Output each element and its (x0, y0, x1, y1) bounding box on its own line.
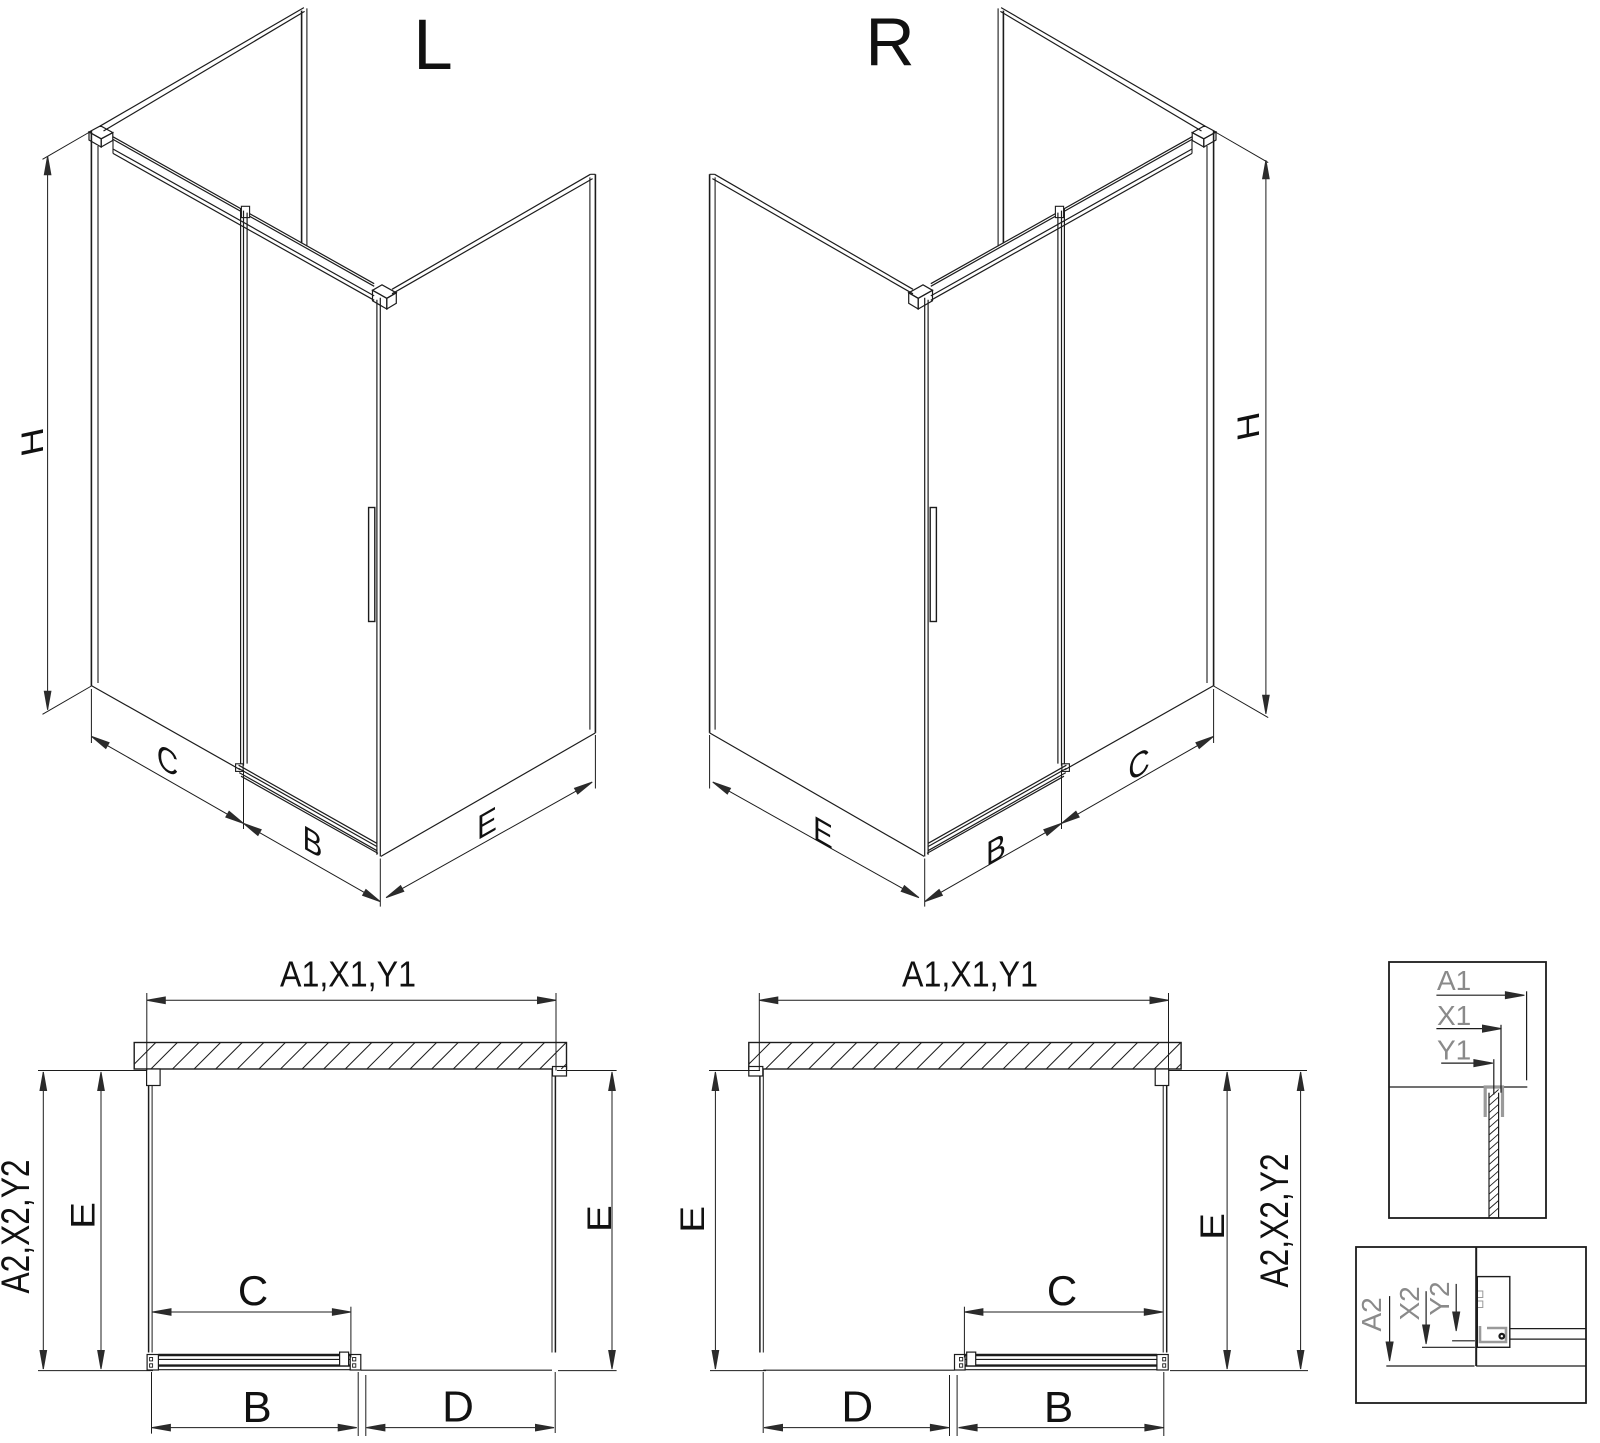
svg-text:B: B (242, 1383, 271, 1432)
svg-text:A2,X2,Y2: A2,X2,Y2 (0, 1160, 38, 1294)
svg-text:R: R (865, 5, 914, 81)
svg-text:A2: A2 (1356, 1297, 1387, 1331)
svg-text:Y1: Y1 (1437, 1035, 1471, 1066)
svg-text:D: D (841, 1383, 873, 1432)
svg-text:C: C (238, 1267, 268, 1314)
svg-text:Y2: Y2 (1424, 1281, 1455, 1315)
svg-text:A1,X1,Y1: A1,X1,Y1 (902, 954, 1038, 995)
svg-text:A1,X1,Y1: A1,X1,Y1 (280, 954, 416, 995)
svg-text:A2,X2,Y2: A2,X2,Y2 (1253, 1154, 1297, 1288)
svg-text:E: E (1194, 1213, 1232, 1240)
svg-text:A1: A1 (1437, 965, 1471, 996)
svg-text:E: E (674, 1206, 712, 1233)
svg-text:L: L (413, 6, 453, 85)
svg-text:C: C (1047, 1267, 1077, 1314)
svg-text:X2: X2 (1394, 1286, 1425, 1320)
svg-text:B: B (1044, 1383, 1073, 1432)
svg-text:E: E (581, 1205, 619, 1232)
svg-text:D: D (442, 1383, 474, 1432)
svg-text:E: E (65, 1202, 103, 1229)
svg-text:X1: X1 (1437, 1000, 1471, 1031)
